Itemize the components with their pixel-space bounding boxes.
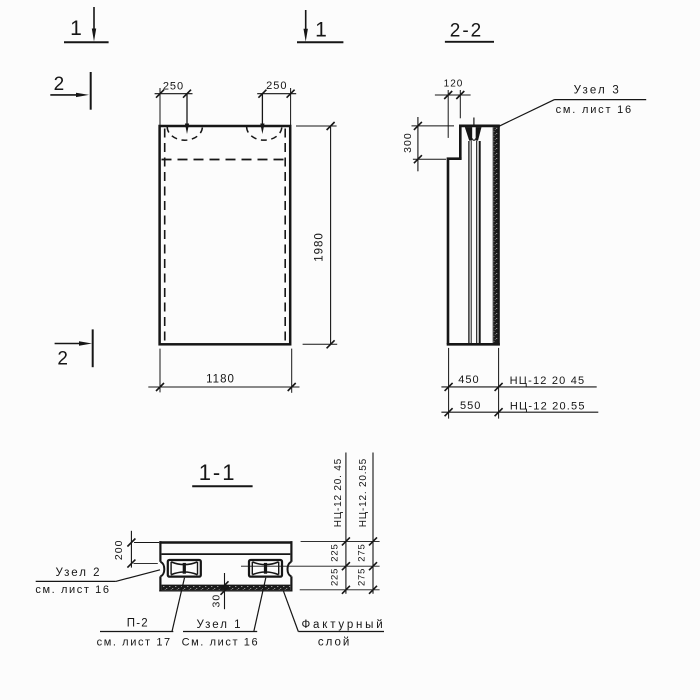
svg-text:225: 225 [329, 568, 340, 586]
svg-text:см. лист 16: см. лист 16 [35, 584, 110, 596]
svg-text:2: 2 [54, 74, 65, 95]
svg-text:Узел 3: Узел 3 [574, 85, 621, 97]
svg-text:1: 1 [70, 17, 82, 40]
svg-text:НЦ-12 20. 45: НЦ-12 20. 45 [333, 458, 344, 527]
svg-text:НЦ-12. 20.55: НЦ-12. 20.55 [358, 458, 369, 527]
svg-text:1980: 1980 [314, 232, 326, 262]
svg-text:250: 250 [163, 81, 184, 93]
svg-text:см. лист 17: см. лист 17 [97, 637, 172, 649]
svg-text:см. лист 16: см. лист 16 [556, 104, 633, 116]
svg-text:См. лист 16: См. лист 16 [182, 637, 260, 649]
svg-text:Узел 1: Узел 1 [196, 619, 242, 631]
svg-text:НЦ-12 20 45: НЦ-12 20 45 [510, 375, 586, 387]
svg-text:450: 450 [458, 374, 479, 386]
svg-text:550: 550 [460, 400, 481, 412]
svg-text:2-2: 2-2 [450, 21, 483, 42]
svg-text:200: 200 [113, 540, 125, 561]
svg-text:слой: слой [318, 637, 351, 649]
svg-text:П-2: П-2 [127, 617, 149, 629]
svg-text:225: 225 [329, 543, 340, 561]
svg-text:275: 275 [357, 543, 368, 561]
svg-text:275: 275 [357, 568, 368, 586]
svg-text:2: 2 [57, 349, 68, 370]
svg-text:1-1: 1-1 [199, 460, 237, 485]
svg-text:1: 1 [315, 19, 327, 42]
svg-text:30: 30 [210, 594, 222, 608]
svg-text:Фактурный: Фактурный [302, 619, 386, 631]
svg-text:250: 250 [266, 80, 287, 92]
svg-text:Узел 2: Узел 2 [55, 567, 101, 579]
svg-text:НЦ-12 20.55: НЦ-12 20.55 [510, 401, 586, 413]
svg-text:1180: 1180 [206, 374, 235, 386]
svg-text:120: 120 [444, 78, 464, 89]
svg-text:300: 300 [402, 132, 414, 153]
